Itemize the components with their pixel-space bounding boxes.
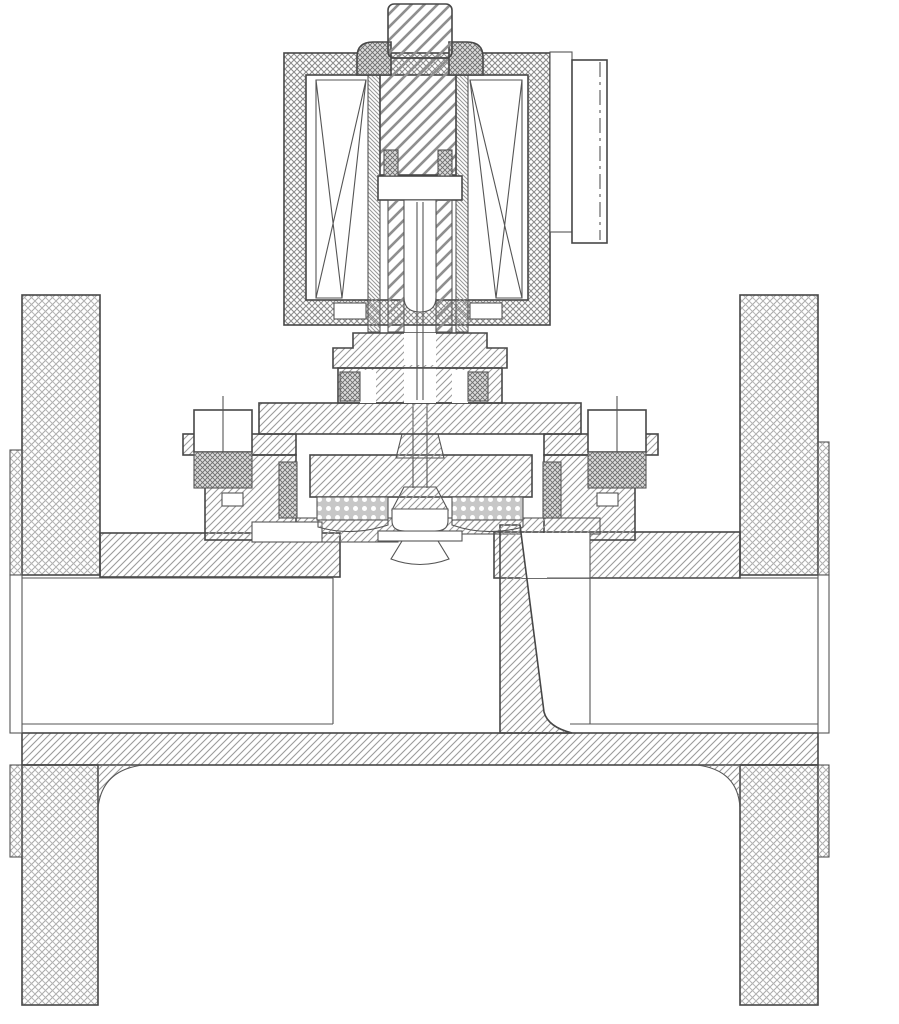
connector-plug-body <box>572 60 607 243</box>
solenoid-valve-section-drawing <box>0 0 899 1024</box>
plunger-lower-right <box>436 200 452 332</box>
plug-skirt <box>391 541 449 565</box>
flange-face-left <box>10 575 22 733</box>
packing-stem-slot <box>404 368 436 403</box>
notch-right <box>597 493 618 506</box>
perforated-plate-right <box>452 497 523 520</box>
bore-left-lines <box>22 578 333 724</box>
perforated-plate-left <box>317 497 388 520</box>
coil-cap-left <box>357 42 391 75</box>
chamber-seal-right <box>543 462 561 518</box>
plate-tab-left <box>384 150 398 176</box>
packing-gap-left <box>360 370 376 403</box>
seal-gland-right <box>468 372 488 401</box>
connector-gasket-strip <box>550 52 572 232</box>
chamber-seal-left <box>279 462 297 518</box>
valve-plug <box>392 509 448 531</box>
coil-cap-right <box>449 42 483 75</box>
body-bottom-wall <box>22 733 818 765</box>
bobbin-flange-right <box>470 303 502 319</box>
nut-left <box>194 452 252 488</box>
seal-gland-left <box>340 372 360 401</box>
bobbin-flange-left <box>334 303 366 319</box>
flange-leg-right <box>740 765 818 1005</box>
flange-leg-left <box>22 765 98 1005</box>
fillet-right <box>697 765 740 808</box>
notch-left <box>222 493 243 506</box>
flange-face-right <box>818 575 829 733</box>
flange-right-step <box>818 442 829 575</box>
drawing-page <box>0 0 899 1024</box>
solenoid-actuator <box>284 4 550 400</box>
step-recess-left <box>252 522 322 542</box>
step-recess-right <box>521 533 590 578</box>
bonnet-upper-slot <box>404 333 436 365</box>
plate-tab-right <box>438 150 452 176</box>
stem-boss <box>396 434 444 458</box>
spring-plate <box>378 176 462 200</box>
plunger-lower-left <box>388 200 404 332</box>
flange-right <box>740 295 818 575</box>
stem-top <box>388 4 452 58</box>
nut-right <box>588 452 646 488</box>
flange-left-step <box>10 450 22 575</box>
plunger-spring-bore <box>404 200 436 312</box>
flange-leg-right-step <box>818 765 829 857</box>
flange-left <box>22 295 100 575</box>
electrical-connector <box>550 52 607 243</box>
bonnet-flange <box>259 403 581 434</box>
bonnet <box>259 333 581 434</box>
packing-gap-right <box>452 370 468 403</box>
flange-leg-left-step <box>10 765 22 857</box>
valve-seat <box>378 531 462 541</box>
fillet-left <box>98 765 143 808</box>
